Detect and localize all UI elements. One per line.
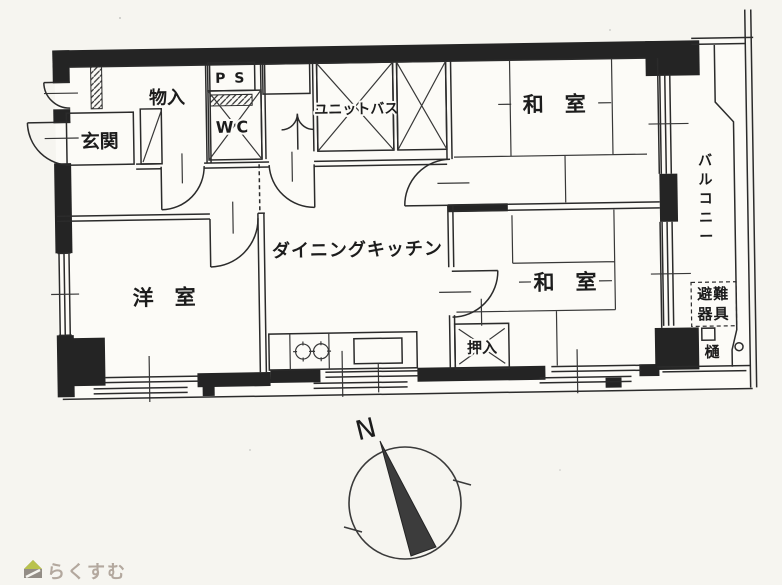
entrance-label: 玄関 (81, 129, 119, 153)
watermark: らくすむ (24, 560, 127, 583)
scanned-floorplan-page: 玄関 物入 P S WC ユニットバス (0, 0, 782, 585)
pipe-space-label: P S (215, 70, 246, 86)
compass: N (344, 412, 471, 559)
japanese-room-bottom-label: 和 室 (533, 270, 596, 295)
dining-kitchen-label: ダイニングキッチン (272, 237, 443, 262)
storage-label: 物入 (149, 86, 185, 109)
floor-plan: 玄関 物入 P S WC ユニットバス (26, 9, 759, 403)
balcony-label: バルコニー (698, 153, 713, 245)
western-room-label: 洋 室 (133, 285, 196, 310)
closet-label: 押入 (467, 338, 497, 356)
watermark-text: らくすむ (47, 562, 127, 583)
gutter-label: 樋 (704, 343, 719, 361)
toilet-label: WC (216, 117, 252, 137)
evacuation-label-line1: 避難 (697, 285, 729, 304)
room-western: 洋 室 (133, 285, 196, 310)
evacuation-label-line2: 器具 (696, 305, 729, 324)
house-icon (24, 560, 42, 578)
unit-bath-label: ユニットバス (314, 101, 398, 118)
north-label: N (352, 412, 379, 447)
compass-needle-icon (380, 441, 436, 556)
japanese-room-top-label: 和 室 (523, 92, 586, 117)
floorplan-canvas: 玄関 物入 P S WC ユニットバス (0, 0, 782, 585)
